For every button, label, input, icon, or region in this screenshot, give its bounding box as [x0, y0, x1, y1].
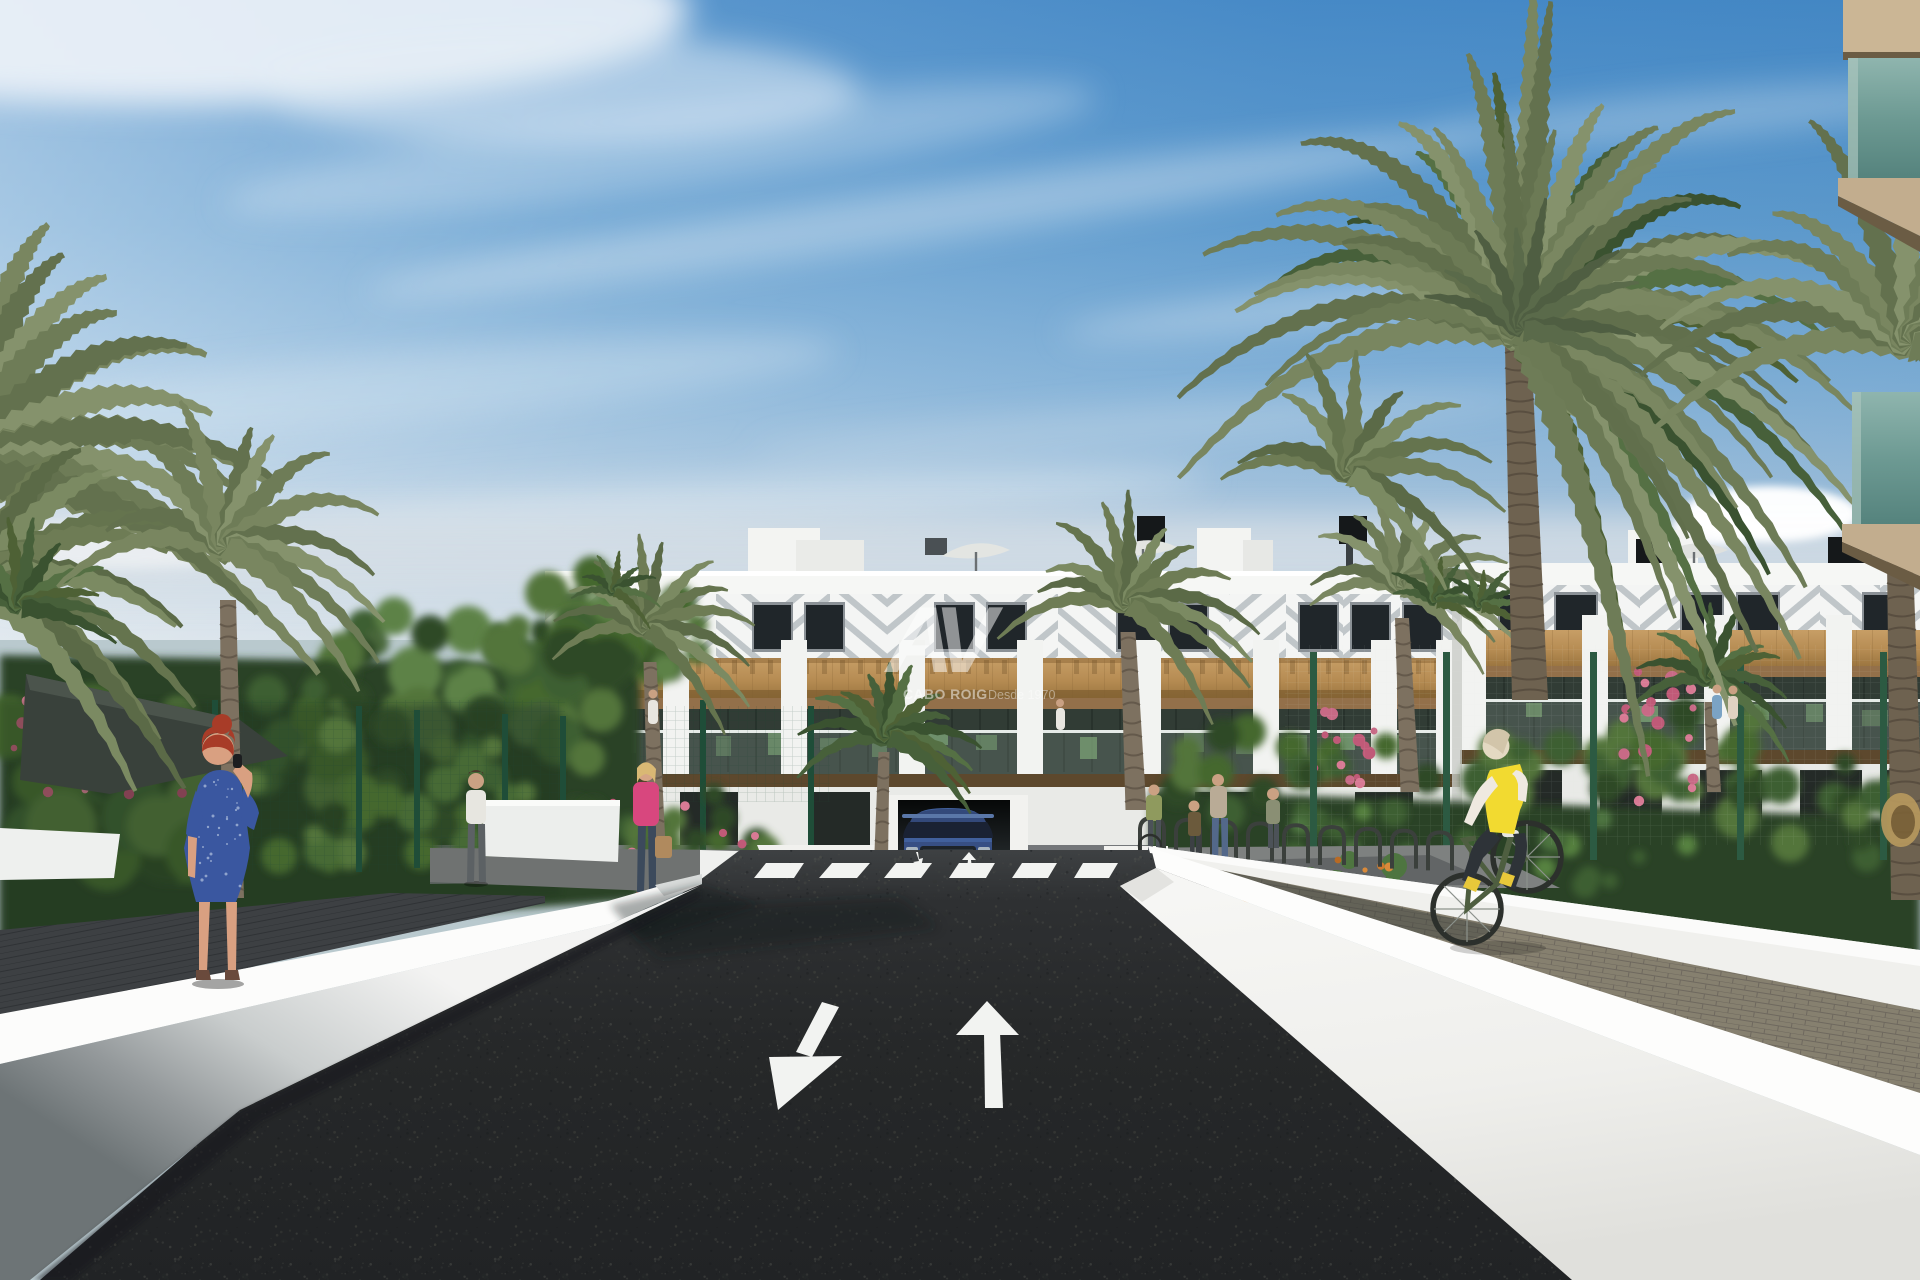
svg-text:Desde 1970: Desde 1970: [988, 688, 1055, 702]
svg-text:CABO ROIG: CABO ROIG: [903, 686, 988, 702]
